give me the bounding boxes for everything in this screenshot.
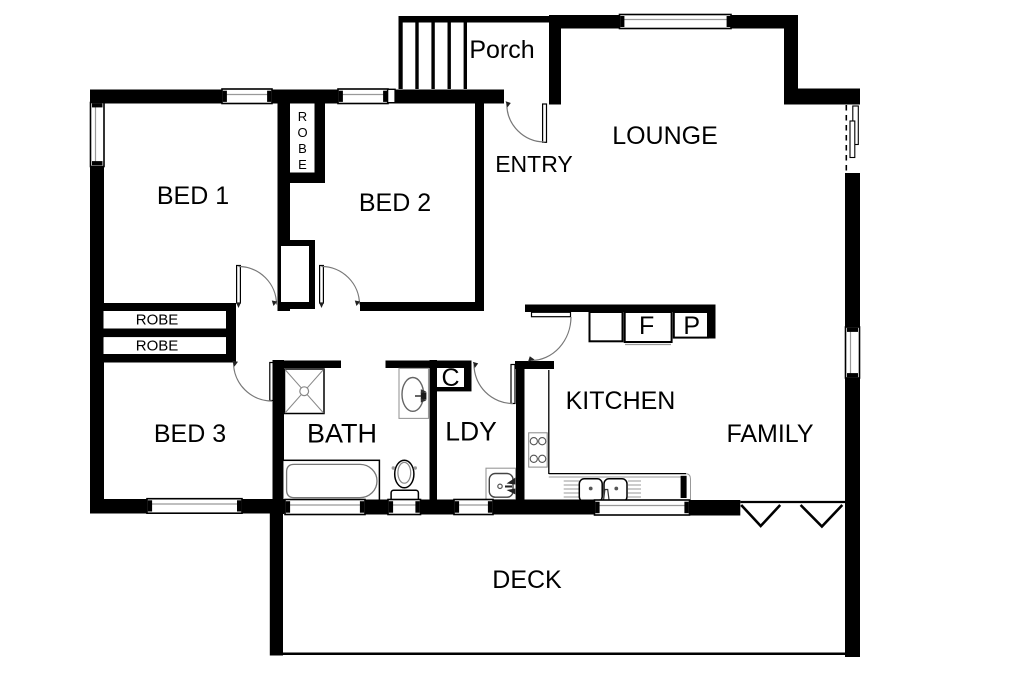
svg-text:E: E: [298, 157, 307, 172]
svg-text:DECK: DECK: [492, 566, 562, 594]
svg-text:C: C: [441, 364, 459, 392]
svg-text:ROBE: ROBE: [136, 312, 179, 329]
svg-text:ENTRY: ENTRY: [495, 151, 573, 177]
svg-text:BED 3: BED 3: [154, 420, 226, 448]
svg-text:BED 2: BED 2: [359, 189, 431, 217]
svg-text:O: O: [297, 125, 307, 140]
svg-text:B: B: [298, 141, 307, 156]
svg-text:LDY: LDY: [445, 417, 497, 447]
svg-text:KITCHEN: KITCHEN: [566, 387, 676, 415]
svg-text:BED 1: BED 1: [157, 182, 229, 210]
svg-text:Porch: Porch: [469, 36, 534, 64]
svg-text:F: F: [639, 312, 654, 340]
svg-text:LOUNGE: LOUNGE: [612, 122, 718, 150]
svg-text:ROBE: ROBE: [136, 338, 179, 355]
svg-text:P: P: [683, 312, 700, 340]
svg-text:BATH: BATH: [307, 419, 377, 449]
svg-text:FAMILY: FAMILY: [726, 420, 813, 448]
svg-text:R: R: [298, 109, 307, 124]
